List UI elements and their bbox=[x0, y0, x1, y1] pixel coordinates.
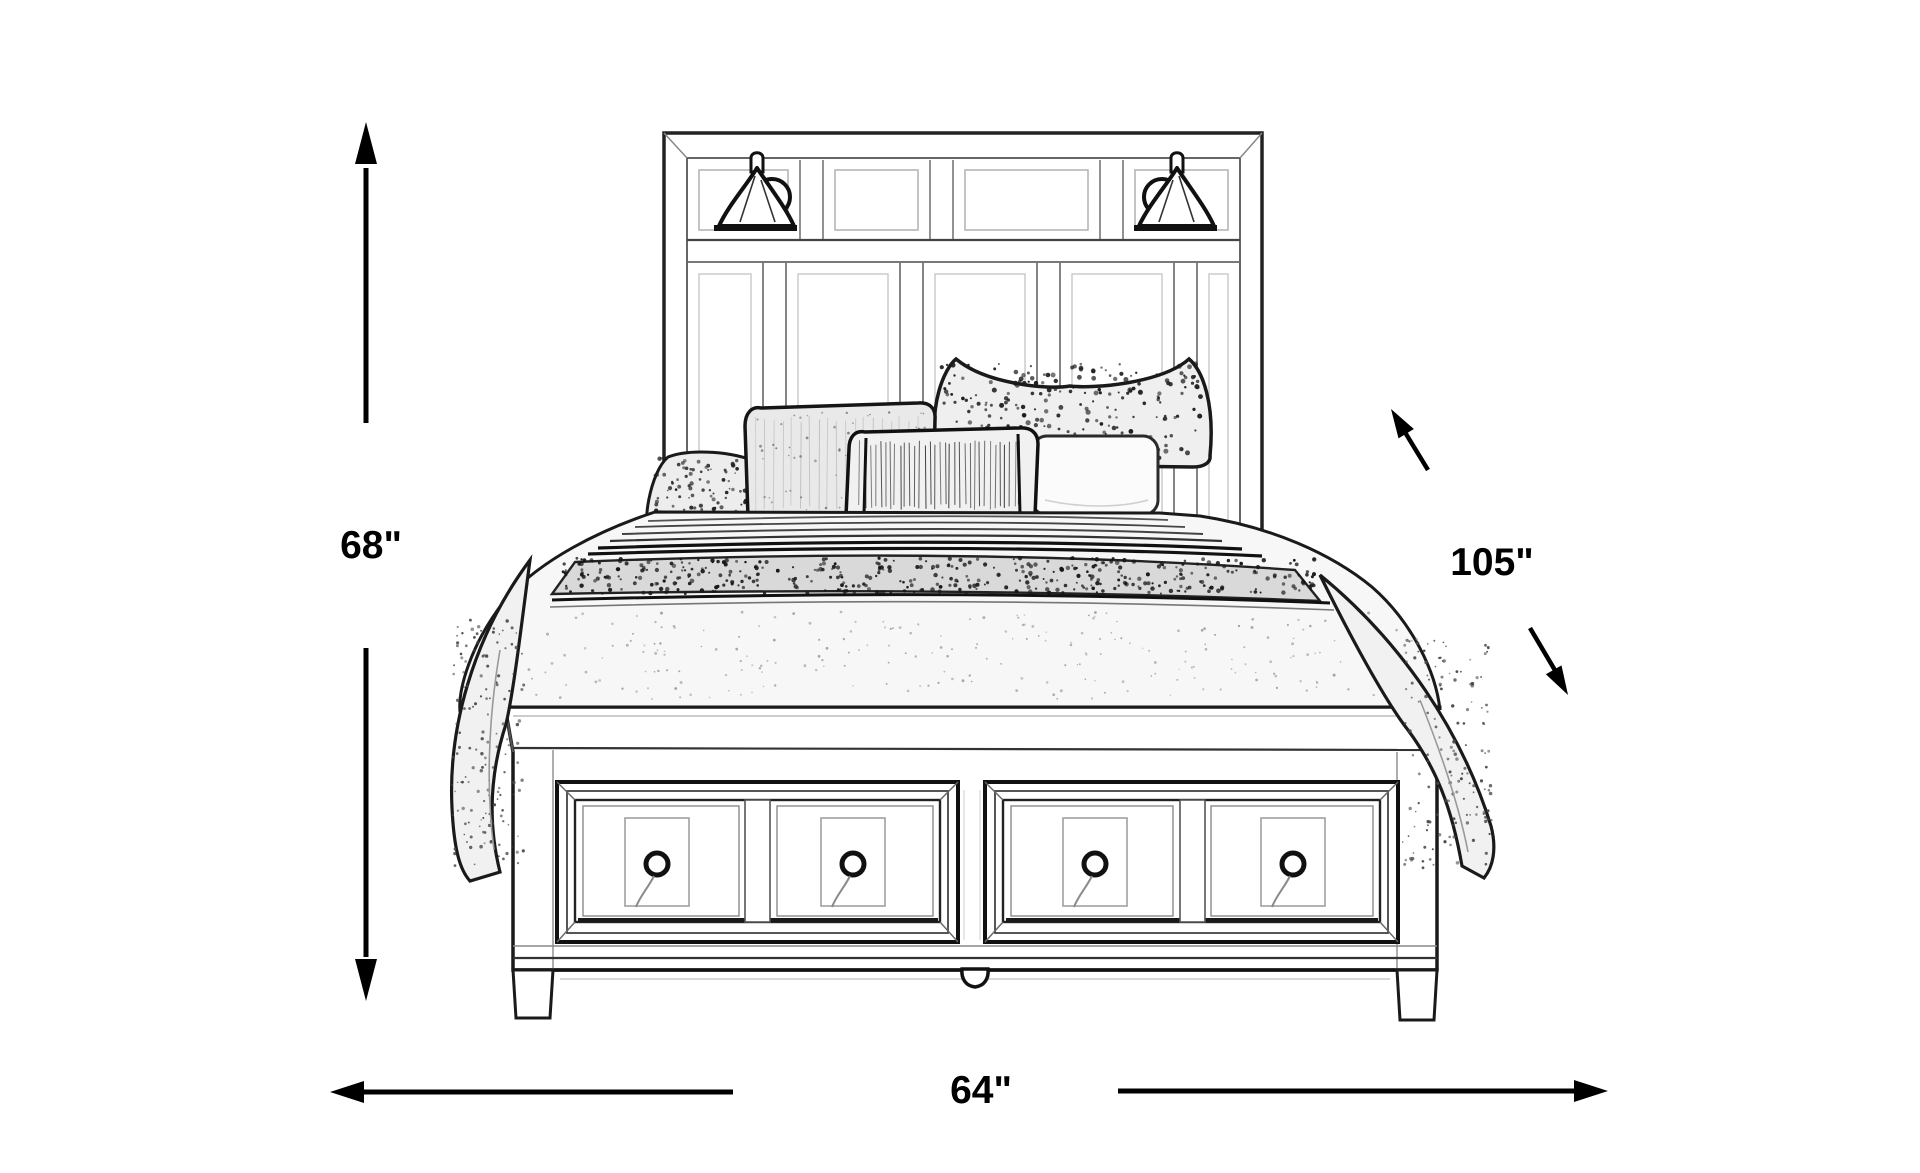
footboard-ornament bbox=[962, 969, 988, 987]
arrow-up-left-icon bbox=[1383, 404, 1414, 438]
height-label: 68" bbox=[340, 524, 402, 567]
drawer-knob bbox=[1084, 853, 1106, 875]
drawer-knob bbox=[842, 853, 864, 875]
bed-dimension-diagram-page: 68" 105" 64" bbox=[0, 0, 1920, 1173]
depth-label: 105" bbox=[1450, 541, 1534, 584]
arrow-up-icon bbox=[355, 122, 377, 164]
arrow-right-icon bbox=[1574, 1080, 1608, 1102]
storage-footboard bbox=[505, 707, 1437, 1020]
bed-dimension-sketch: 68" 105" 64" bbox=[0, 0, 1920, 1173]
arrow-down-icon bbox=[355, 959, 377, 1001]
striped-lumbar-pillow bbox=[846, 428, 1038, 516]
right-leg bbox=[1397, 970, 1437, 1020]
drawer-knob bbox=[1282, 853, 1304, 875]
left-leg bbox=[513, 970, 553, 1018]
drawer-knob bbox=[646, 853, 668, 875]
white-pillow bbox=[1032, 436, 1158, 515]
width-label: 64" bbox=[950, 1069, 1012, 1112]
arrow-down-right-icon bbox=[1546, 665, 1576, 699]
arrow-left-icon bbox=[330, 1081, 364, 1103]
